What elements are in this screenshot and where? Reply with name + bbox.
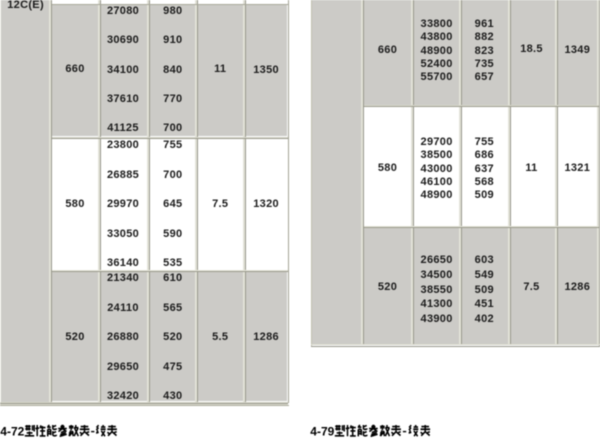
svg-text:4-72: 4-72 <box>0 425 24 439</box>
svg-text:4-79: 4-79 <box>310 425 334 439</box>
